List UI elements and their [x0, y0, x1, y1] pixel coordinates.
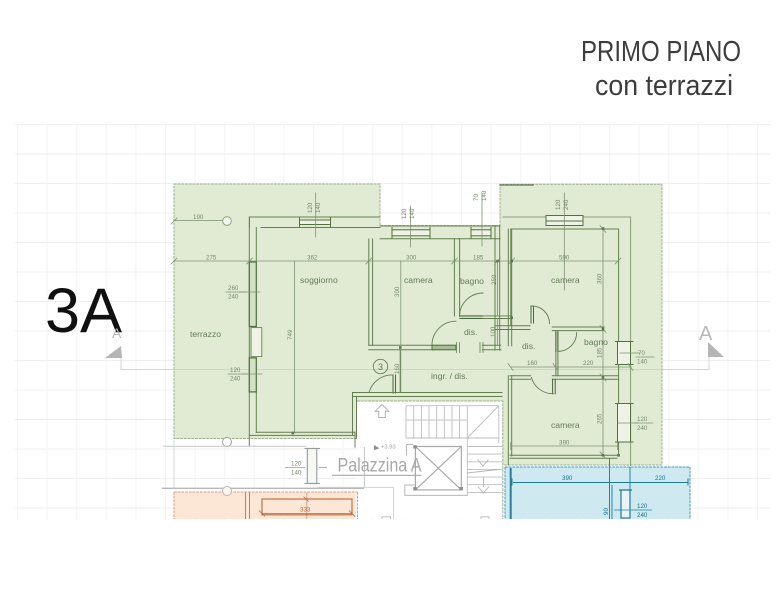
svg-text:160: 160 — [394, 363, 401, 374]
svg-text:390: 390 — [559, 440, 570, 447]
svg-text:190: 190 — [193, 214, 204, 221]
svg-text:240: 240 — [637, 425, 648, 432]
svg-text:140: 140 — [409, 208, 416, 219]
svg-text:con terrazzi: con terrazzi — [595, 70, 733, 102]
svg-text:250: 250 — [491, 274, 498, 285]
svg-text:120: 120 — [230, 367, 241, 374]
svg-text:A: A — [112, 325, 122, 341]
svg-text:140: 140 — [637, 359, 648, 366]
svg-text:140: 140 — [481, 190, 488, 201]
svg-text:120: 120 — [307, 202, 314, 213]
svg-text:bagno: bagno — [584, 337, 608, 347]
svg-text:240: 240 — [228, 294, 239, 301]
svg-text:3: 3 — [378, 362, 383, 372]
svg-text:265: 265 — [597, 413, 604, 424]
svg-text:120: 120 — [401, 208, 408, 219]
svg-text:160: 160 — [527, 360, 538, 367]
svg-text:70: 70 — [473, 194, 480, 201]
svg-text:+3.93: +3.93 — [381, 445, 396, 451]
svg-text:camera: camera — [551, 420, 580, 430]
svg-text:terrazzo: terrazzo — [190, 329, 221, 339]
svg-text:333: 333 — [300, 507, 311, 514]
svg-text:300: 300 — [394, 286, 401, 297]
svg-text:140: 140 — [315, 202, 322, 213]
svg-text:camera: camera — [551, 275, 580, 285]
svg-text:240: 240 — [230, 376, 241, 383]
svg-text:120: 120 — [555, 199, 562, 210]
svg-text:362: 362 — [307, 255, 318, 262]
svg-text:soggiorno: soggiorno — [300, 275, 338, 285]
svg-text:749: 749 — [287, 329, 294, 340]
svg-text:590: 590 — [559, 255, 570, 262]
svg-text:240: 240 — [637, 512, 648, 519]
svg-text:260: 260 — [228, 285, 239, 292]
svg-text:dis.: dis. — [522, 341, 535, 351]
svg-text:275: 275 — [206, 255, 217, 262]
svg-text:bagno: bagno — [460, 276, 484, 286]
svg-text:3A: 3A — [45, 276, 122, 346]
svg-text:120: 120 — [637, 503, 648, 510]
svg-text:70: 70 — [638, 350, 645, 357]
svg-text:185: 185 — [473, 255, 484, 262]
svg-text:dis.: dis. — [464, 327, 477, 337]
svg-text:camera: camera — [404, 275, 433, 285]
svg-text:390: 390 — [562, 475, 573, 482]
svg-text:Palazzina A: Palazzina A — [338, 456, 422, 477]
svg-text:240: 240 — [563, 199, 570, 210]
svg-text:A: A — [699, 323, 713, 345]
svg-text:185: 185 — [597, 347, 604, 358]
svg-text:300: 300 — [406, 255, 417, 262]
svg-text:ingr. / dis.: ingr. / dis. — [431, 371, 468, 381]
svg-text:90: 90 — [603, 508, 610, 515]
svg-text:360: 360 — [597, 273, 604, 284]
svg-text:PRIMO PIANO: PRIMO PIANO — [581, 36, 741, 68]
svg-text:220: 220 — [655, 475, 666, 482]
svg-text:100: 100 — [490, 326, 497, 337]
svg-text:140: 140 — [291, 470, 302, 477]
svg-text:220: 220 — [583, 360, 594, 367]
svg-text:120: 120 — [291, 461, 302, 468]
svg-text:120: 120 — [637, 416, 648, 423]
